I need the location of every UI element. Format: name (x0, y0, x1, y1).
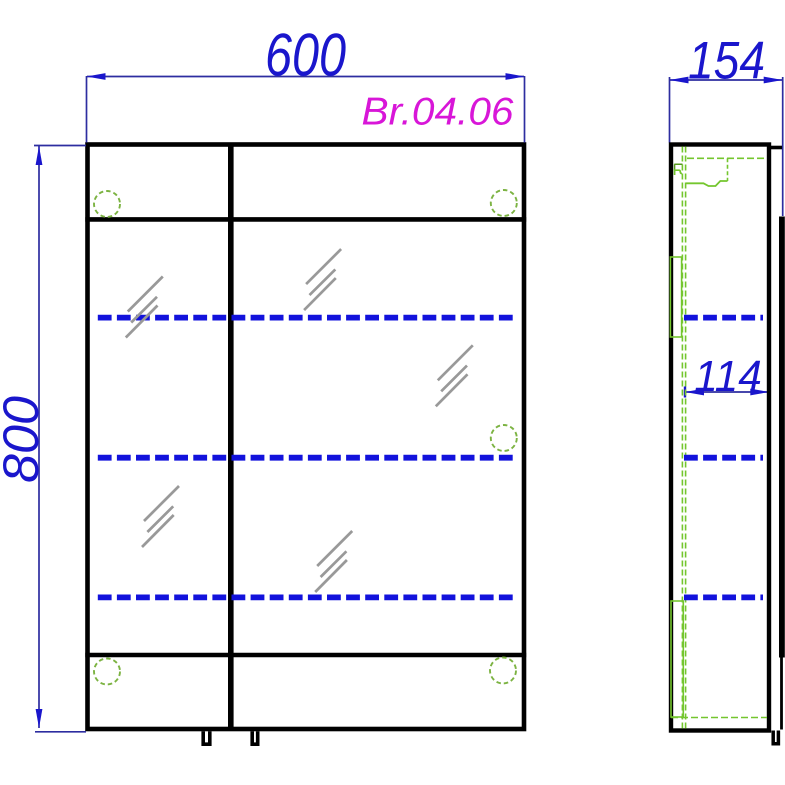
svg-text:800: 800 (0, 396, 49, 483)
svg-text:Br.04.06: Br.04.06 (362, 91, 514, 134)
svg-text:154: 154 (688, 31, 765, 90)
svg-text:600: 600 (265, 22, 346, 89)
svg-text:114: 114 (694, 352, 762, 401)
